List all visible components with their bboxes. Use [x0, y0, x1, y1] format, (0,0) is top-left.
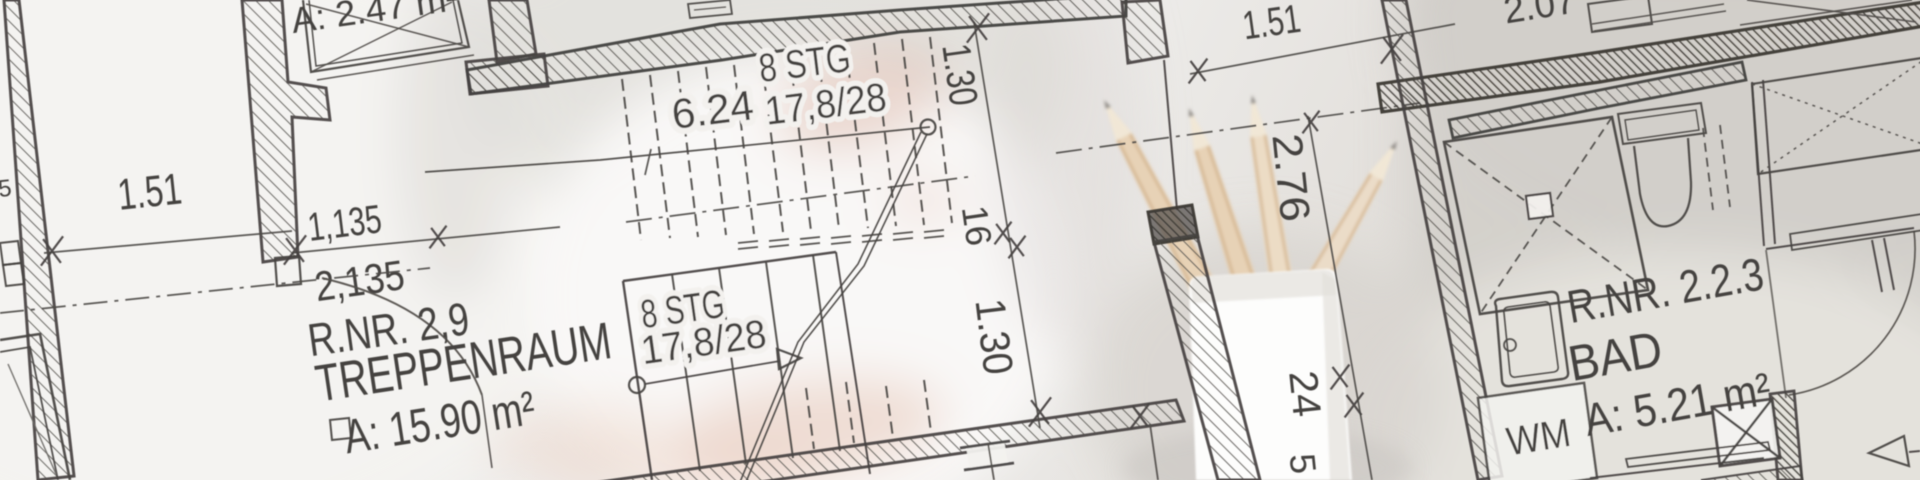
svg-text:1.30: 1.30 — [933, 41, 985, 109]
svg-text:5: 5 — [1282, 452, 1325, 476]
svg-text:1,135: 1,135 — [305, 197, 384, 250]
svg-text:1.30: 1.30 — [966, 296, 1022, 377]
svg-text:1.51: 1.51 — [115, 164, 184, 219]
svg-text:16: 16 — [954, 203, 1000, 248]
svg-text:1.51: 1.51 — [1240, 0, 1304, 48]
svg-text:2.76: 2.76 — [1263, 131, 1319, 223]
svg-text:6.24: 6.24 — [669, 81, 756, 138]
svg-text:24: 24 — [1280, 369, 1329, 419]
